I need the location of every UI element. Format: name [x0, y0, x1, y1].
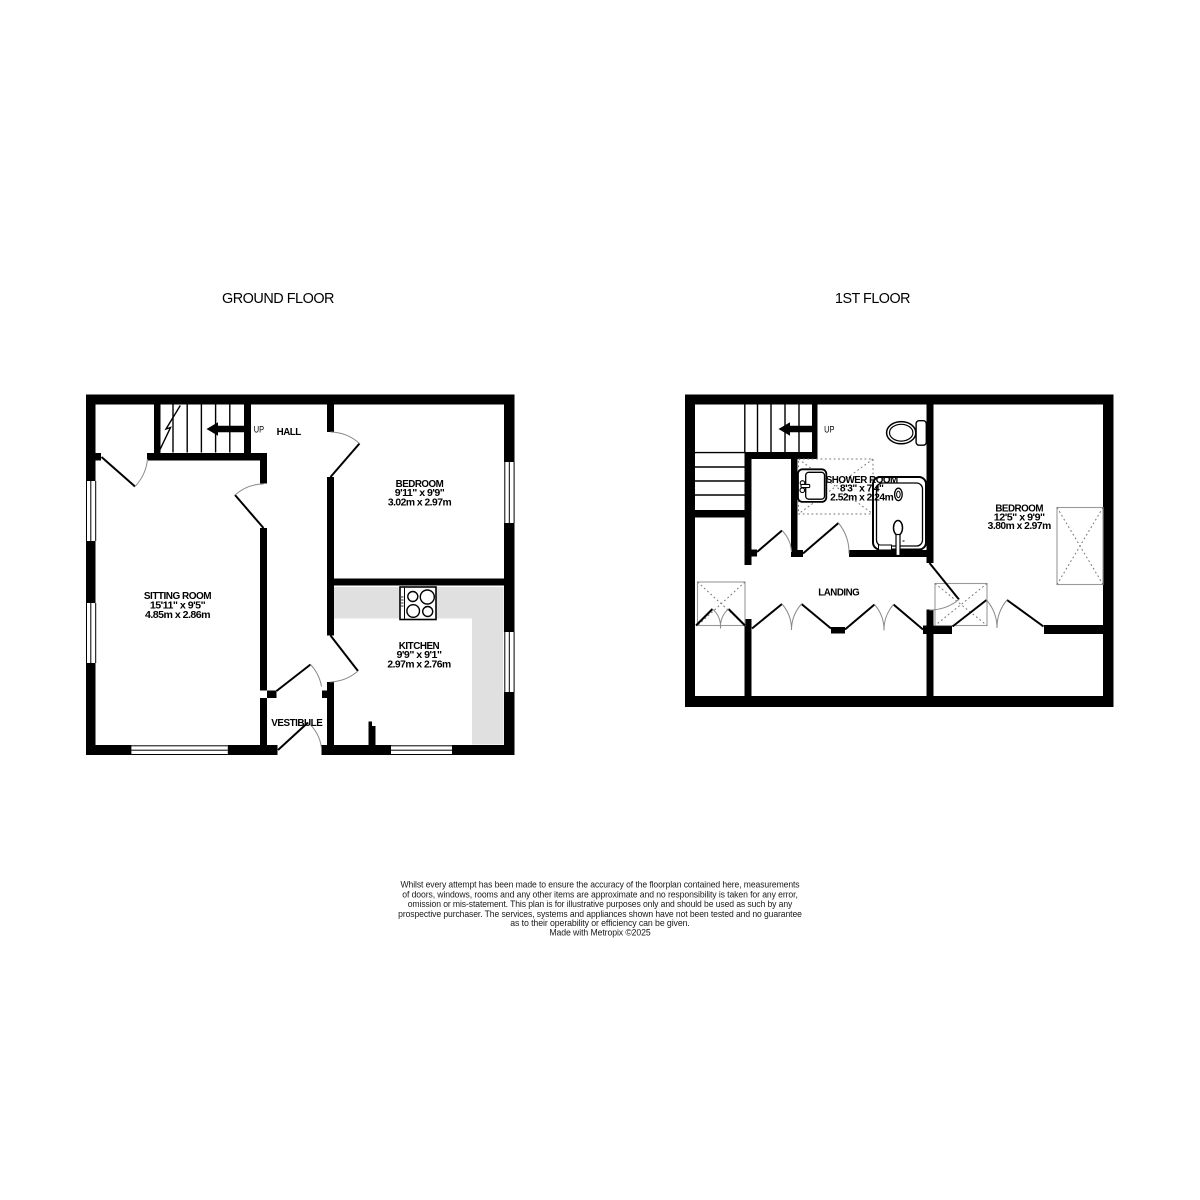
svg-text:GROUND FLOOR: GROUND FLOOR	[222, 291, 334, 307]
svg-text:Whilst every attempt has been: Whilst every attempt has been made to en…	[401, 880, 801, 890]
svg-text:3.02m x 2.97m: 3.02m x 2.97m	[388, 497, 452, 508]
svg-text:UP: UP	[824, 424, 834, 434]
svg-text:4.85m x 2.86m: 4.85m x 2.86m	[145, 610, 211, 621]
svg-text:Made with Metropix ©2025: Made with Metropix ©2025	[549, 928, 650, 938]
svg-text:omission or mis-statement. Thi: omission or mis-statement. This plan is …	[408, 899, 793, 909]
svg-text:2.97m x 2.76m: 2.97m x 2.76m	[387, 659, 451, 670]
svg-text:as to their operability or eff: as to their operability or efficiency ca…	[510, 918, 690, 928]
svg-text:UP: UP	[254, 424, 264, 434]
svg-text:3.80m x 2.97m: 3.80m x 2.97m	[988, 521, 1052, 532]
svg-text:2.52m x 2.24m: 2.52m x 2.24m	[830, 492, 894, 503]
svg-text:1ST FLOOR: 1ST FLOOR	[835, 291, 910, 307]
svg-text:of doors, windows, rooms and a: of doors, windows, rooms and any other i…	[402, 890, 798, 900]
svg-text:VESTIBULE: VESTIBULE	[271, 718, 323, 729]
svg-text:LANDING: LANDING	[818, 588, 860, 599]
svg-text:HALL: HALL	[277, 427, 301, 438]
